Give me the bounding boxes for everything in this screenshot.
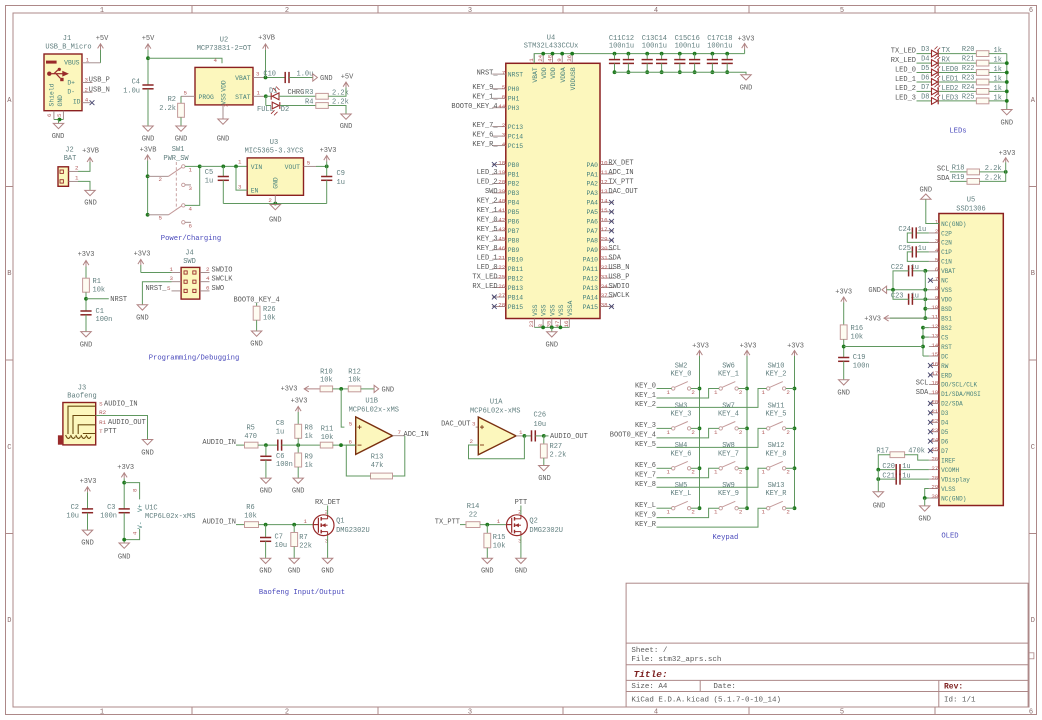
svg-text:+3V3: +3V3	[320, 147, 337, 155]
svg-text:KEY_1: KEY_1	[635, 392, 656, 400]
svg-text:10k: 10k	[263, 315, 276, 323]
svg-text:Keypad: Keypad	[712, 534, 738, 542]
svg-text:KEY_9: KEY_9	[718, 490, 739, 498]
svg-text:23: 23	[528, 320, 535, 327]
svg-text:PC15: PC15	[508, 143, 524, 150]
svg-text:18: 18	[498, 160, 505, 167]
svg-text:3: 3	[189, 185, 193, 192]
svg-text:C7: C7	[275, 533, 283, 541]
svg-text:GND: GND	[382, 386, 395, 394]
svg-text:MCP6L02x-xMS: MCP6L02x-xMS	[470, 407, 520, 415]
svg-text:4: 4	[502, 141, 506, 148]
svg-text:USB_N: USB_N	[608, 264, 629, 272]
svg-text:GND: GND	[57, 95, 64, 107]
svg-text:PB6: PB6	[508, 219, 520, 226]
svg-text:3: 3	[325, 538, 329, 545]
svg-text:AUDIO_IN: AUDIO_IN	[202, 518, 236, 526]
svg-text:GND: GND	[515, 567, 528, 575]
svg-text:KEY_3: KEY_3	[635, 422, 656, 430]
svg-text:kicad (5.1.7-0-10_14): kicad (5.1.7-0-10_14)	[687, 696, 782, 704]
svg-text:C8: C8	[276, 420, 284, 428]
svg-text:D3: D3	[941, 410, 949, 417]
svg-text:43: 43	[498, 226, 505, 233]
svg-text:R7: R7	[299, 534, 307, 542]
svg-text:R15: R15	[493, 534, 506, 542]
svg-text:+3V3: +3V3	[281, 385, 298, 393]
svg-text:RX_LED: RX_LED	[472, 283, 497, 291]
svg-text:28: 28	[931, 474, 938, 481]
svg-text:R3: R3	[305, 89, 313, 97]
svg-text:1: 1	[170, 266, 174, 273]
svg-text:D+: D+	[67, 80, 75, 87]
svg-text:18: 18	[931, 380, 938, 387]
svg-text:7: 7	[398, 429, 402, 436]
svg-text:VDD: VDD	[221, 80, 228, 92]
svg-text:16: 16	[563, 320, 570, 327]
svg-text:C10: C10	[263, 71, 276, 79]
svg-text:2.2k: 2.2k	[550, 452, 567, 460]
svg-text:DAC_OUT: DAC_OUT	[441, 421, 470, 429]
svg-text:100n: 100n	[853, 362, 870, 370]
svg-text:KEY_4: KEY_4	[718, 410, 739, 418]
svg-text:2: 2	[739, 429, 743, 436]
svg-text:6: 6	[189, 222, 193, 229]
svg-text:26: 26	[931, 455, 938, 462]
svg-text:R21: R21	[962, 56, 975, 64]
svg-text:SW6: SW6	[722, 362, 735, 370]
svg-text:PA14: PA14	[583, 294, 599, 301]
svg-text:RX_LED: RX_LED	[891, 57, 916, 65]
svg-text:1: 1	[714, 389, 718, 396]
svg-text:11: 11	[931, 313, 938, 320]
svg-text:1: 1	[935, 219, 939, 226]
svg-text:D5: D5	[941, 429, 949, 436]
svg-text:+3V3: +3V3	[692, 342, 709, 350]
svg-text:GND: GND	[217, 136, 230, 144]
svg-text:10k: 10k	[93, 287, 106, 295]
svg-text:100n1u: 100n1u	[609, 42, 634, 50]
svg-text:C: C	[7, 444, 11, 452]
svg-text:DAC_OUT: DAC_OUT	[608, 188, 637, 196]
svg-text:+3V3: +3V3	[134, 251, 151, 259]
svg-text:SW1: SW1	[172, 146, 185, 154]
svg-text:GND: GND	[259, 567, 272, 575]
svg-text:D7: D7	[921, 84, 929, 92]
svg-text:GND: GND	[545, 341, 558, 349]
svg-text:37: 37	[601, 292, 608, 299]
svg-text:CS: CS	[941, 334, 949, 341]
svg-text:10k: 10k	[244, 513, 257, 521]
svg-text:DC: DC	[941, 353, 949, 360]
svg-text:1: 1	[667, 509, 671, 516]
svg-text:RX_DET: RX_DET	[315, 499, 340, 507]
svg-text:BSD: BSD	[941, 306, 952, 313]
svg-text:+3VB: +3VB	[140, 146, 157, 154]
svg-text:2: 2	[786, 429, 790, 436]
svg-text:C1P: C1P	[941, 249, 952, 256]
svg-text:ID: ID	[73, 99, 81, 106]
svg-text:1: 1	[519, 429, 523, 436]
svg-text:39: 39	[498, 188, 505, 195]
svg-text:PB0: PB0	[508, 162, 520, 169]
svg-text:1: 1	[762, 389, 766, 396]
svg-text:R12: R12	[348, 369, 361, 377]
svg-text:GND: GND	[142, 136, 155, 144]
svg-text:2: 2	[739, 389, 743, 396]
svg-text:1: 1	[189, 166, 193, 173]
svg-text:SCL: SCL	[937, 166, 950, 174]
svg-text:KEY_6: KEY_6	[635, 462, 656, 470]
svg-text:AUDIO_IN: AUDIO_IN	[104, 400, 138, 408]
svg-text:KEY_2: KEY_2	[477, 198, 498, 206]
svg-text:R23: R23	[962, 74, 975, 82]
svg-text:LEDs: LEDs	[949, 127, 966, 135]
svg-text:1: 1	[762, 509, 766, 516]
svg-text:6: 6	[349, 438, 353, 445]
svg-text:31: 31	[601, 254, 608, 261]
svg-text:R8: R8	[305, 425, 313, 433]
svg-text:MCP73831-2=OT: MCP73831-2=OT	[197, 45, 252, 53]
svg-text:1u: 1u	[276, 429, 284, 437]
svg-text:U5: U5	[967, 196, 975, 204]
svg-text:GND: GND	[175, 136, 188, 144]
svg-text:2: 2	[935, 228, 939, 235]
svg-text:PB8: PB8	[508, 238, 520, 245]
svg-text:100n1u: 100n1u	[707, 42, 732, 50]
svg-text:KEY_5: KEY_5	[765, 410, 786, 418]
svg-text:R1: R1	[93, 278, 101, 286]
svg-text:C3: C3	[107, 504, 115, 512]
svg-text:2: 2	[739, 509, 743, 516]
svg-text:VDD: VDD	[550, 67, 557, 79]
svg-text:1: 1	[304, 518, 308, 525]
svg-text:3: 3	[468, 7, 472, 15]
svg-text:KEY_9: KEY_9	[635, 511, 656, 519]
svg-text:GND: GND	[141, 450, 154, 458]
svg-text:TX_LED: TX_LED	[891, 47, 916, 55]
svg-text:2: 2	[285, 708, 289, 716]
svg-text:+3V3: +3V3	[738, 35, 755, 43]
svg-text:KEY_9_: KEY_9_	[472, 84, 498, 92]
svg-text:100n: 100n	[96, 316, 113, 324]
svg-text:1: 1	[238, 159, 242, 166]
svg-text:+3V3: +3V3	[787, 342, 804, 350]
svg-text:21: 21	[498, 254, 505, 261]
svg-text:R26: R26	[263, 306, 276, 314]
svg-text:D-: D-	[67, 89, 75, 96]
svg-text:C26: C26	[534, 412, 547, 420]
svg-text:10u: 10u	[66, 512, 79, 520]
svg-text:TX_LED: TX_LED	[472, 273, 497, 281]
svg-text:C2N: C2N	[941, 240, 952, 247]
svg-text:PTT: PTT	[515, 499, 528, 507]
svg-text:3: 3	[170, 275, 174, 282]
svg-text:D: D	[1031, 617, 1035, 625]
svg-text:4: 4	[654, 7, 658, 15]
svg-text:J2: J2	[65, 147, 73, 155]
svg-text:33: 33	[601, 273, 608, 280]
svg-text:ADC_IN: ADC_IN	[404, 431, 429, 439]
svg-text:7: 7	[935, 275, 939, 282]
svg-text:5: 5	[56, 113, 63, 117]
svg-text:BS1: BS1	[941, 315, 952, 322]
svg-text:LED_1: LED_1	[477, 254, 498, 262]
svg-text:R13: R13	[371, 454, 384, 462]
svg-text:1: 1	[497, 518, 501, 525]
svg-text:C4: C4	[132, 79, 140, 87]
svg-text:R25: R25	[962, 93, 975, 101]
svg-text:15: 15	[601, 207, 608, 214]
svg-text:LED_2: LED_2	[477, 179, 498, 187]
svg-text:45: 45	[498, 235, 505, 242]
svg-text:47k: 47k	[371, 462, 384, 470]
svg-text:D6: D6	[921, 74, 929, 82]
svg-text:RST: RST	[941, 344, 952, 351]
svg-text:PA4: PA4	[586, 200, 598, 207]
svg-text:KEY_8: KEY_8	[635, 481, 656, 489]
svg-text:5: 5	[167, 285, 171, 292]
svg-text:8: 8	[132, 488, 139, 492]
svg-text:10k: 10k	[348, 376, 361, 384]
svg-text:PB1: PB1	[508, 171, 520, 178]
svg-text:1: 1	[667, 389, 671, 396]
svg-text:VSS: VSS	[221, 93, 228, 105]
svg-text:14: 14	[931, 342, 938, 349]
svg-text:+5V: +5V	[142, 35, 155, 43]
svg-text:2: 2	[786, 509, 790, 516]
svg-text:1u: 1u	[337, 179, 345, 187]
svg-text:ERD: ERD	[941, 372, 952, 379]
svg-text:VDDUSB: VDDUSB	[570, 67, 577, 90]
svg-text:LED_3: LED_3	[477, 169, 498, 177]
svg-text:R19: R19	[952, 174, 965, 182]
svg-text:2: 2	[739, 469, 743, 476]
svg-text:AUDIO_IN: AUDIO_IN	[202, 439, 236, 447]
svg-text:GND: GND	[80, 341, 93, 349]
svg-text:SCL: SCL	[916, 380, 929, 388]
svg-text:25: 25	[498, 273, 505, 280]
svg-text:4: 4	[214, 57, 218, 64]
svg-text:+5V: +5V	[96, 35, 109, 43]
svg-text:2: 2	[285, 7, 289, 15]
svg-text:R11: R11	[321, 426, 334, 434]
svg-text:U1C: U1C	[145, 505, 158, 513]
svg-text:R6: R6	[246, 504, 254, 512]
svg-text:42: 42	[498, 216, 505, 223]
svg-text:PA9: PA9	[586, 247, 598, 254]
svg-text:1: 1	[100, 7, 104, 15]
svg-text:LED_1: LED_1	[895, 76, 916, 84]
svg-text:GND: GND	[273, 177, 280, 189]
svg-text:GND: GND	[868, 287, 881, 295]
svg-text:U1A: U1A	[490, 398, 503, 406]
svg-text:32: 32	[601, 264, 608, 271]
svg-text:470: 470	[244, 433, 257, 441]
svg-text:1: 1	[762, 429, 766, 436]
svg-text:Shield: Shield	[49, 83, 56, 106]
svg-text:29: 29	[931, 484, 938, 491]
svg-text:D: D	[7, 617, 11, 625]
svg-text:VSS: VSS	[558, 304, 565, 316]
svg-text:MCP6L02x-xMS: MCP6L02x-xMS	[145, 513, 195, 521]
svg-text:LED_0: LED_0	[895, 66, 916, 74]
svg-text:KEY_6: KEY_6	[670, 450, 691, 458]
svg-text:SDA: SDA	[608, 254, 621, 262]
svg-text:1: 1	[86, 56, 90, 63]
svg-text:NRST: NRST	[508, 71, 524, 78]
svg-text:R2: R2	[168, 96, 176, 104]
svg-text:MIC5365-3.3YCS: MIC5365-3.3YCS	[245, 147, 304, 155]
svg-text:C6: C6	[276, 453, 284, 461]
svg-text:19: 19	[931, 389, 938, 396]
svg-text:3: 3	[256, 71, 260, 78]
svg-text:3: 3	[502, 131, 506, 138]
svg-text:PA8: PA8	[586, 238, 598, 245]
svg-text:PA7: PA7	[586, 228, 598, 235]
svg-text:SWO: SWO	[485, 188, 498, 196]
svg-text:KEY_R: KEY_R	[635, 521, 657, 529]
svg-text:R24: R24	[962, 84, 975, 92]
svg-text:KEY_0: KEY_0	[477, 216, 498, 224]
svg-text:100n: 100n	[276, 461, 293, 469]
svg-text:VSS: VSS	[532, 304, 539, 316]
svg-text:12: 12	[931, 323, 938, 330]
svg-text:PB7: PB7	[508, 228, 520, 235]
svg-text:GND: GND	[250, 341, 263, 349]
svg-text:VDDA: VDDA	[560, 67, 567, 83]
svg-text:5: 5	[840, 708, 844, 716]
svg-text:Q1: Q1	[336, 518, 344, 526]
svg-text:R14: R14	[467, 503, 480, 511]
svg-text:22: 22	[469, 512, 477, 520]
svg-text:NRST: NRST	[110, 296, 127, 304]
svg-text:PC14: PC14	[508, 133, 524, 140]
svg-text:GND: GND	[288, 567, 301, 575]
svg-text:BS2: BS2	[941, 325, 952, 332]
svg-text:VSS: VSS	[941, 287, 952, 294]
svg-text:3: 3	[472, 421, 476, 428]
svg-text:Title:: Title:	[634, 669, 668, 680]
svg-text:16: 16	[931, 361, 938, 368]
svg-text:D8: D8	[921, 93, 929, 101]
svg-text:2: 2	[691, 509, 695, 516]
svg-text:Rev:: Rev:	[944, 682, 963, 691]
svg-text:SW13: SW13	[768, 482, 785, 490]
svg-text:4: 4	[85, 96, 89, 103]
svg-text:Id: 1/1: Id: 1/1	[944, 696, 976, 704]
svg-text:DMG2302U: DMG2302U	[529, 527, 563, 535]
svg-text:1: 1	[714, 469, 718, 476]
svg-text:2: 2	[325, 509, 329, 516]
svg-text:VSS: VSS	[541, 304, 548, 316]
svg-text:PB5: PB5	[508, 209, 520, 216]
svg-text:22: 22	[931, 417, 938, 424]
svg-text:GND: GND	[918, 516, 931, 524]
svg-text:100n: 100n	[100, 512, 117, 520]
svg-text:PROG: PROG	[199, 94, 215, 101]
svg-text:PH3: PH3	[508, 105, 520, 112]
svg-text:SWCLK: SWCLK	[608, 292, 630, 300]
svg-text:SSD1306: SSD1306	[956, 205, 985, 213]
svg-text:DMG2302U: DMG2302U	[336, 527, 370, 535]
svg-text:B: B	[1031, 270, 1035, 278]
svg-text:PB4: PB4	[508, 200, 520, 207]
svg-text:PA10: PA10	[583, 256, 599, 263]
svg-text:DO/SCL/CLK: DO/SCL/CLK	[941, 382, 977, 389]
svg-text:B: B	[7, 270, 11, 278]
svg-text:+3V3: +3V3	[78, 251, 95, 259]
svg-text:SDA: SDA	[916, 389, 929, 397]
svg-text:+3V3: +3V3	[999, 150, 1016, 158]
svg-text:Q2: Q2	[529, 518, 537, 526]
svg-text:1: 1	[714, 429, 718, 436]
svg-text:1: 1	[75, 175, 79, 182]
svg-text:Power/Charging: Power/Charging	[161, 235, 221, 243]
svg-text:C2P: C2P	[941, 230, 952, 237]
svg-text:C19: C19	[853, 354, 866, 362]
svg-text:+3V3: +3V3	[835, 288, 852, 296]
svg-text:R9: R9	[305, 454, 313, 462]
svg-text:5: 5	[349, 420, 353, 427]
svg-text:9: 9	[556, 58, 563, 62]
svg-text:LED_2: LED_2	[895, 85, 916, 93]
svg-text:30: 30	[601, 245, 608, 252]
svg-text:KEY_L: KEY_L	[670, 490, 691, 498]
svg-text:+3V3: +3V3	[740, 342, 757, 350]
svg-text:44: 44	[498, 103, 505, 110]
svg-text:BOOT0_KEY_4: BOOT0_KEY_4	[610, 432, 656, 440]
svg-text:C: C	[1031, 444, 1035, 452]
svg-text:R22: R22	[962, 65, 975, 73]
svg-text:KEY_0: KEY_0	[670, 371, 691, 379]
svg-text:C5: C5	[205, 169, 213, 177]
svg-text:+3V3: +3V3	[117, 464, 134, 472]
svg-text:10k: 10k	[321, 434, 334, 442]
svg-text:PA2: PA2	[586, 181, 598, 188]
svg-text:SW7: SW7	[722, 402, 735, 410]
svg-text:GND: GND	[740, 85, 753, 93]
svg-text:KiCad E.D.A.: KiCad E.D.A.	[631, 696, 685, 704]
svg-text:10: 10	[931, 304, 938, 311]
svg-text:NRST_: NRST_	[145, 285, 167, 293]
svg-text:R27: R27	[550, 443, 563, 451]
svg-text:GND: GND	[340, 123, 353, 131]
svg-text:27: 27	[498, 292, 505, 299]
svg-text:20: 20	[931, 399, 938, 406]
svg-text:SW8: SW8	[722, 442, 735, 450]
svg-text:D6: D6	[941, 439, 949, 446]
svg-text:2: 2	[159, 176, 163, 183]
svg-text:2: 2	[518, 509, 522, 516]
svg-text:2: 2	[786, 469, 790, 476]
svg-text:6: 6	[935, 266, 939, 273]
svg-text:VIN: VIN	[251, 164, 263, 171]
svg-text:D4: D4	[921, 56, 929, 64]
svg-text:U1B: U1B	[365, 398, 378, 406]
svg-text:GND: GND	[136, 315, 149, 323]
svg-text:PB10: PB10	[508, 256, 524, 263]
svg-text:5: 5	[307, 159, 311, 166]
svg-text:U4: U4	[547, 34, 555, 42]
svg-text:PWR_SW: PWR_SW	[163, 155, 189, 163]
svg-text:GND: GND	[320, 75, 333, 83]
svg-text:J4: J4	[185, 249, 193, 257]
svg-text:GND: GND	[292, 488, 305, 496]
svg-text:GND: GND	[321, 567, 334, 575]
svg-text:10u: 10u	[534, 421, 547, 429]
svg-text:V-: V-	[137, 521, 144, 529]
svg-text:KEY_L: KEY_L	[635, 502, 656, 510]
